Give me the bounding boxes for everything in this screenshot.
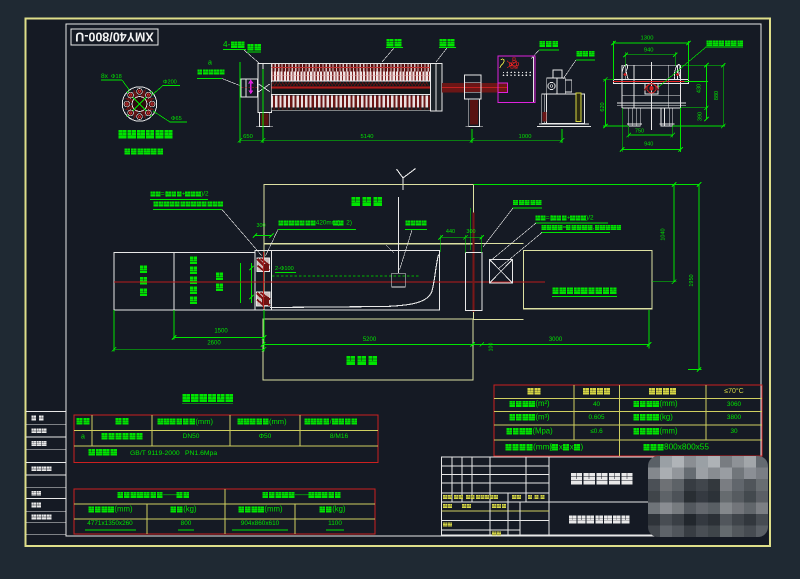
svg-text:1300: 1300 — [641, 36, 654, 42]
svg-text:5140: 5140 — [361, 134, 374, 140]
svg-text:8/M16: 8/M16 — [330, 433, 349, 440]
svg-text:800: 800 — [181, 520, 192, 527]
svg-text:(mm): (mm) — [195, 417, 213, 426]
svg-text:390: 390 — [697, 112, 703, 121]
svg-text:(mm): (mm) — [264, 505, 283, 514]
svg-text:(kg): (kg) — [659, 413, 673, 422]
svg-text:1040: 1040 — [660, 228, 666, 240]
svg-text:1100: 1100 — [328, 520, 342, 527]
svg-text:Φ50: Φ50 — [259, 433, 272, 440]
svg-text:3000: 3000 — [549, 337, 563, 343]
svg-text:2-Φ100: 2-Φ100 — [275, 266, 294, 272]
svg-text:3800: 3800 — [727, 414, 742, 421]
svg-text:Φ200: Φ200 — [163, 80, 177, 86]
svg-text:300: 300 — [466, 229, 475, 235]
svg-text:≤70°C: ≤70°C — [724, 387, 743, 395]
svg-text:(mm): (mm) — [114, 505, 133, 514]
svg-text:.: . — [533, 494, 534, 500]
svg-text:Φ65: Φ65 — [171, 116, 182, 122]
svg-text:)/2: )/2 — [586, 215, 594, 222]
svg-text:——: —— — [295, 490, 311, 499]
svg-text:(kg): (kg) — [183, 505, 197, 514]
svg-text:Φ18: Φ18 — [111, 74, 122, 80]
svg-text:430: 430 — [696, 84, 702, 93]
svg-text:904x860x610: 904x860x610 — [241, 520, 280, 527]
svg-text:——: —— — [163, 490, 179, 499]
svg-text:3060: 3060 — [727, 401, 742, 408]
svg-text:DN50: DN50 — [183, 433, 200, 440]
svg-text:0.605: 0.605 — [589, 414, 605, 421]
svg-text:8x: 8x — [101, 73, 109, 80]
svg-text:)/2: )/2 — [201, 191, 209, 198]
svg-text:4771x1350x260: 4771x1350x260 — [87, 520, 133, 527]
svg-text:PN1.6Mpa: PN1.6Mpa — [185, 450, 217, 457]
svg-text:(mm): (mm) — [269, 417, 287, 426]
svg-text:940: 940 — [644, 142, 653, 148]
svg-text:1000: 1000 — [519, 134, 532, 140]
svg-text:,: , — [593, 224, 595, 231]
svg-text:880: 880 — [714, 91, 720, 100]
svg-text:2600: 2600 — [207, 341, 221, 347]
svg-text:GB/T 9119-2000: GB/T 9119-2000 — [130, 450, 180, 457]
svg-text:XMY40/800-U: XMY40/800-U — [75, 30, 154, 44]
svg-text:650: 650 — [243, 134, 253, 140]
svg-text:440: 440 — [446, 229, 455, 235]
svg-text:a: a — [81, 433, 85, 440]
svg-text:(m²): (m²) — [535, 399, 550, 408]
svg-text:(mm): (mm) — [659, 427, 678, 436]
svg-text:): ) — [581, 443, 584, 452]
svg-text:4-: 4- — [223, 40, 231, 49]
svg-text:2): 2) — [346, 220, 352, 227]
svg-text:5200: 5200 — [363, 337, 377, 343]
svg-text:750: 750 — [635, 129, 644, 135]
svg-text:a: a — [208, 60, 212, 67]
svg-text:(m³): (m³) — [535, 413, 550, 422]
svg-text:(: ( — [549, 443, 552, 452]
svg-text:(kg): (kg) — [332, 505, 346, 514]
svg-text:1500: 1500 — [214, 329, 228, 335]
svg-text:1950: 1950 — [689, 274, 695, 286]
svg-text:300: 300 — [257, 223, 266, 229]
svg-text:620: 620 — [600, 102, 606, 111]
svg-text:30: 30 — [730, 428, 738, 435]
svg-text:800x800x55: 800x800x55 — [664, 443, 709, 452]
svg-text:40: 40 — [593, 401, 601, 408]
svg-text:100: 100 — [489, 343, 495, 352]
svg-text:940: 940 — [644, 47, 654, 53]
svg-text:(Mpa): (Mpa) — [532, 427, 553, 436]
svg-text:(mm): (mm) — [659, 399, 678, 408]
svg-text:≤0.6: ≤0.6 — [590, 428, 603, 435]
svg-text:.: . — [539, 494, 540, 500]
